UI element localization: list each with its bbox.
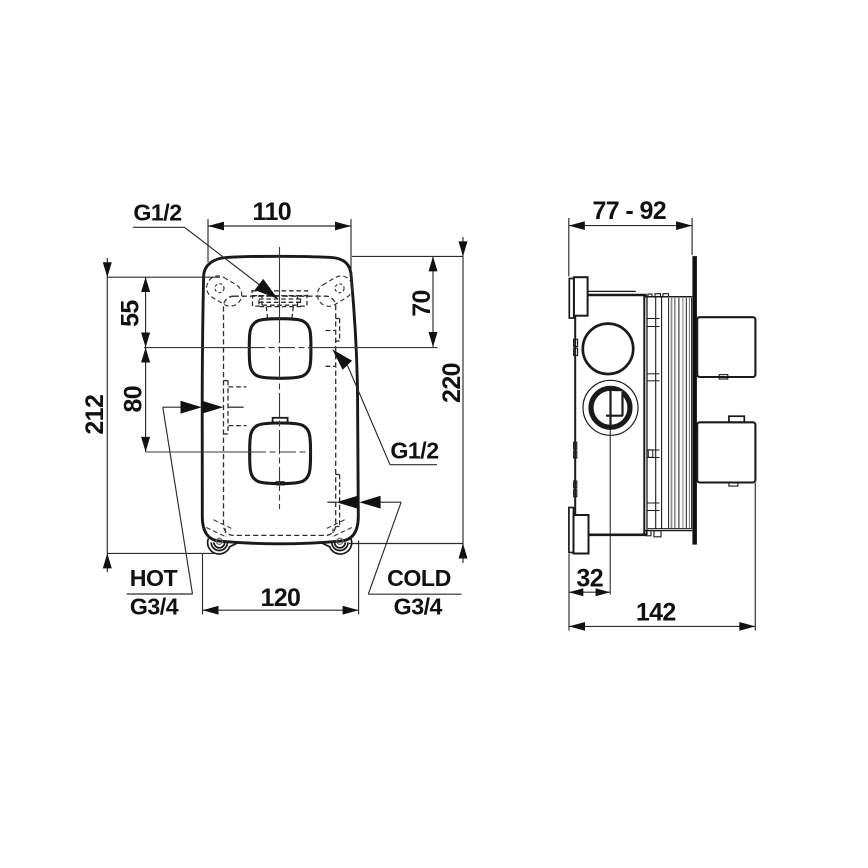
svg-text:HOT: HOT [130,565,178,591]
svg-text:220: 220 [438,363,466,403]
svg-text:G1/2: G1/2 [390,437,438,463]
svg-text:G1/2: G1/2 [133,199,181,225]
svg-text:70: 70 [408,290,436,317]
svg-text:32: 32 [576,565,603,593]
svg-text:G3/4: G3/4 [394,593,443,619]
svg-text:80: 80 [120,386,148,413]
svg-text:77 - 92: 77 - 92 [592,197,666,225]
svg-text:110: 110 [253,198,292,226]
svg-text:142: 142 [636,599,676,627]
svg-text:G3/4: G3/4 [130,593,179,619]
svg-text:120: 120 [260,584,300,612]
svg-text:COLD: COLD [387,565,451,591]
svg-text:212: 212 [81,395,109,435]
svg-text:55: 55 [117,300,145,327]
